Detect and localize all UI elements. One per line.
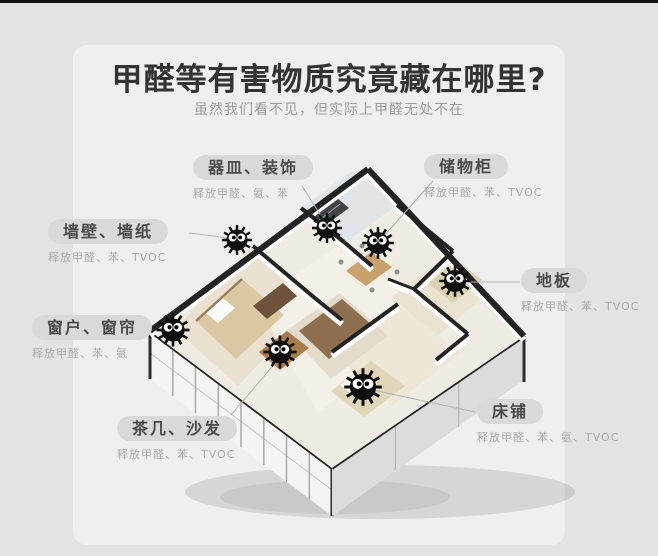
infographic-stage: 甲醛等有害物质究竟藏在哪里? 虽然我们看不见，但实际上甲醛无处不在 [0, 0, 658, 556]
callout-label: 器皿、装饰 [193, 155, 313, 180]
callout-label: 茶几、沙发 [117, 416, 237, 441]
callout-sublabel: 释放甲醛、苯、TVOC [521, 298, 639, 314]
callout-wall-wallpaper: 墙壁、墙纸 释放甲醛、苯、TVOC [48, 219, 168, 265]
callout-sublabel: 释放甲醛、苯、TVOC [424, 184, 542, 200]
soot-sprite-wall-wallpaper [222, 225, 252, 255]
callout-label: 床铺 [477, 399, 543, 424]
callout-sublabel: 释放甲醛、苯、TVOC [117, 446, 237, 462]
callout-label: 储物柜 [424, 154, 508, 179]
callout-sublabel: 释放甲醛、苯、TVOC [48, 249, 168, 265]
callout-sublabel: 释放甲醛、苯、氨、TVOC [477, 429, 619, 445]
callout-sublabel: 释放甲醛、苯、氨 [32, 345, 152, 361]
callout-sublabel: 释放甲醛、氨、苯 [193, 185, 313, 201]
callout-floor: 地板 释放甲醛、苯、TVOC [521, 268, 639, 314]
callout-label: 窗户、窗帘 [32, 315, 152, 340]
callout-vessels-decor: 器皿、装饰 释放甲醛、氨、苯 [193, 155, 313, 201]
callout-bed: 床铺 释放甲醛、苯、氨、TVOC [477, 399, 619, 445]
callout-tea-table-sofa: 茶几、沙发 释放甲醛、苯、TVOC [117, 416, 237, 462]
callout-window-curtain: 窗户、窗帘 释放甲醛、苯、氨 [32, 315, 152, 361]
callout-line-wall-wallpaper [189, 233, 229, 238]
callout-label: 地板 [521, 268, 587, 293]
callout-label: 墙壁、墙纸 [48, 219, 168, 244]
callout-storage-cabinet: 储物柜 释放甲醛、苯、TVOC [424, 154, 542, 200]
